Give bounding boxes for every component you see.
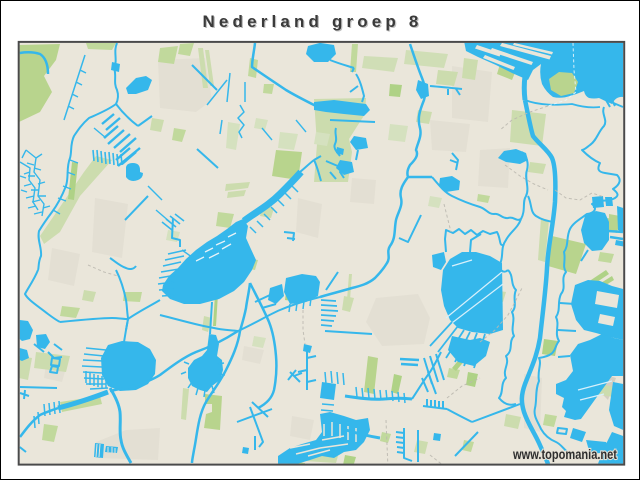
svg-text:Nederland groep 8: Nederland groep 8 (203, 12, 422, 31)
svg-text:www.topomania.net: www.topomania.net (512, 446, 617, 462)
